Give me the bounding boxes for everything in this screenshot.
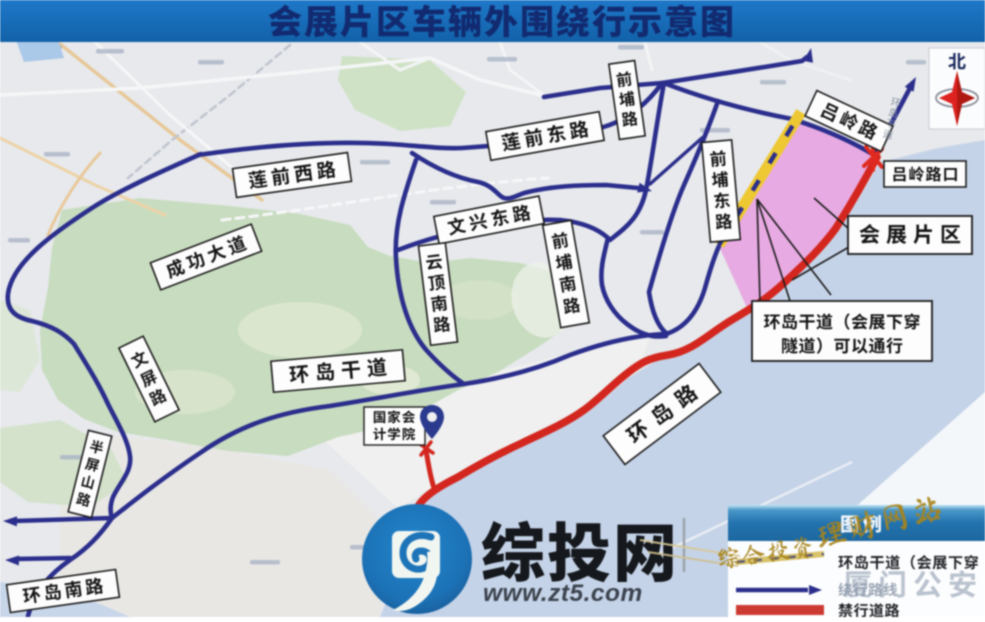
svg-text:www.zt5.com: www.zt5.com: [483, 580, 643, 607]
